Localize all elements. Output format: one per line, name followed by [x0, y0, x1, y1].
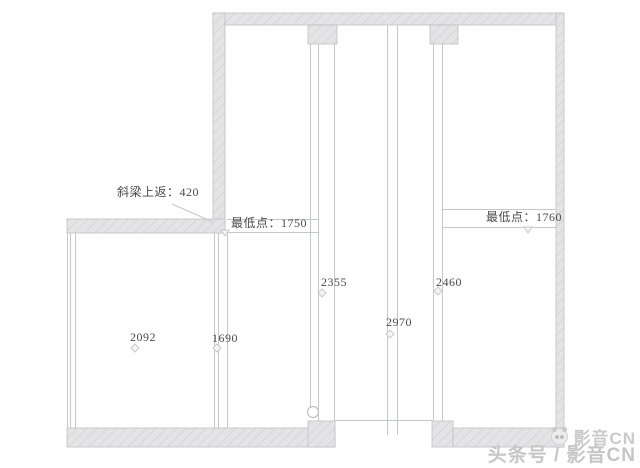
lowest-point-right-label: 最低点：1760 — [486, 211, 562, 224]
pipe-circle — [308, 407, 319, 418]
floor-plan-drawing — [0, 0, 640, 468]
dimension-2460-label: 2460 — [436, 276, 462, 289]
wall-bottom-left — [67, 428, 335, 447]
watermark-byline: 头条号 / 影音CN — [488, 446, 636, 466]
wall-right — [556, 13, 564, 447]
dimension-2970-label: 2970 — [386, 316, 412, 329]
wall-mid-left — [67, 219, 225, 233]
watermark-brand-row: 影音CN — [488, 426, 636, 446]
dimension-2355-label: 2355 — [321, 276, 347, 289]
wall-top — [213, 13, 564, 25]
dimension-marker — [131, 344, 139, 352]
dimension-markers — [131, 227, 532, 352]
dimension-marker — [318, 289, 326, 297]
level-marker — [524, 227, 532, 233]
watermark: 影音CN 头条号 / 影音CN — [488, 426, 636, 466]
dimension-2092-label: 2092 — [130, 331, 156, 344]
panda-logo-icon — [551, 428, 568, 445]
wall-bottom-pier-right — [432, 421, 453, 447]
wall-pier-top-1 — [308, 25, 337, 44]
wall-bottom-pier-left — [308, 421, 335, 447]
wall-upper-left — [213, 13, 225, 233]
dimension-1690-label: 1690 — [212, 332, 238, 345]
beam-note-label: 斜梁上返：420 — [117, 186, 199, 199]
wall-pier-top-2 — [430, 25, 458, 44]
lowest-point-left-label: 最低点：1750 — [231, 217, 307, 230]
floor-plan-canvas: 斜梁上返：420 最低点：1750 最低点：1760 2355 2460 297… — [0, 0, 640, 468]
